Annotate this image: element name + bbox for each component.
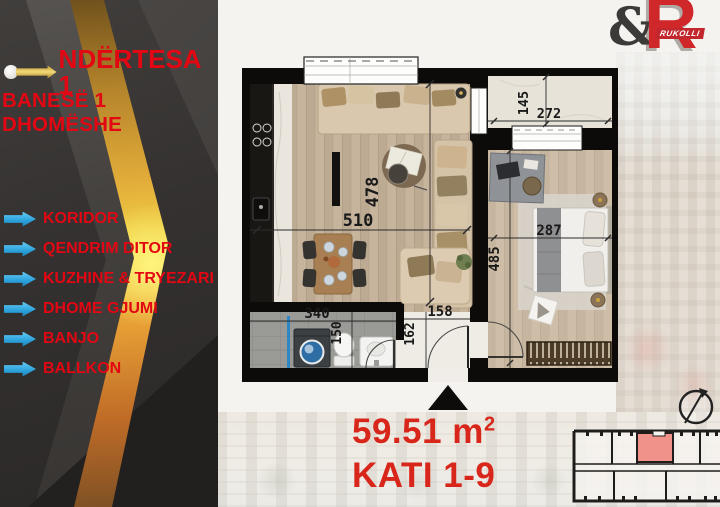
bedroom-door-opening: [470, 322, 488, 358]
room-list: KORIDOR QENDRIM DITOR KUZHINE & TRYEZARI…: [4, 211, 214, 377]
room-list-item-banjo: BANJO: [4, 331, 214, 347]
kitchen-marble-floor: [274, 84, 292, 302]
dim-bathroom-width: 340: [304, 306, 329, 322]
room-label: KUZHINE & TRYEZARI: [43, 270, 214, 288]
arrow-right-icon: [4, 272, 36, 287]
bullet-dot-icon: [4, 65, 18, 79]
arrow-right-icon: [4, 362, 36, 377]
room-list-item-ballkon: BALLKON: [4, 361, 214, 377]
entrance-arrow: [428, 385, 468, 410]
arrow-right-icon: [4, 302, 36, 317]
highlighted-unit: [637, 433, 673, 462]
dim-hall-height: 162: [403, 322, 418, 345]
dim-living-width: 510: [343, 211, 374, 231]
room-label: BALLKON: [43, 360, 121, 378]
room-list-item-koridor: KORIDOR: [4, 211, 214, 227]
room-label: KORIDOR: [43, 210, 119, 228]
room-label: DHOME GJUMI: [43, 300, 158, 318]
entrance-opening: [428, 368, 468, 382]
flyer: NDËRTESA 1 BANESË 1 DHOMËSHE KORIDOR QEN…: [0, 0, 720, 507]
dim-bedroom-width: 287: [536, 223, 561, 239]
room-list-item-dhome-gjumi: DHOME GJUMI: [4, 301, 214, 317]
area-exponent: 2: [484, 413, 496, 435]
window-living-balcony: [471, 88, 487, 134]
key-plan: [568, 382, 720, 507]
room-list-item-kuzhine: KUZHINE & TRYEZARI: [4, 271, 214, 287]
dim-hall-width: 158: [427, 304, 452, 320]
north-arrow-icon: [680, 388, 712, 423]
kitchen-area: [250, 84, 274, 302]
window-living-top: [304, 57, 418, 84]
gold-flag-icon: [16, 66, 57, 79]
logo-company-name: RUKOLLI: [655, 28, 705, 39]
dim-balcony-height: 145: [516, 91, 532, 115]
background-photo-right: [616, 52, 720, 414]
arrow-right-icon: [4, 212, 36, 227]
window-balcony-bedroom: [512, 126, 582, 150]
area-value: 59.51 m: [352, 412, 484, 451]
dim-balcony-width: 272: [537, 106, 561, 122]
arrow-right-icon: [4, 332, 36, 347]
arrow-right-icon: [4, 242, 36, 257]
dim-bedroom-height: 485: [487, 246, 503, 271]
apartment-subtitle: BANESË 1 DHOMËSHE: [2, 89, 218, 137]
room-label: QENDRIM DITOR: [43, 240, 172, 258]
floor-range: KATI 1-9: [352, 456, 495, 496]
dim-bathroom-height: 150: [330, 321, 345, 345]
building-key-plan: [572, 429, 720, 503]
dim-living-height: 478: [363, 177, 383, 208]
room-list-item-qendrim-ditor: QENDRIM DITOR: [4, 241, 214, 257]
apartment-area: 59.51 m2: [352, 412, 496, 452]
sidebar: NDËRTESA 1 BANESË 1 DHOMËSHE KORIDOR QEN…: [0, 0, 218, 507]
room-label: BANJO: [43, 330, 99, 348]
floor-plan: 510 478 145 272 287 485 340 150 158 162: [238, 50, 622, 415]
